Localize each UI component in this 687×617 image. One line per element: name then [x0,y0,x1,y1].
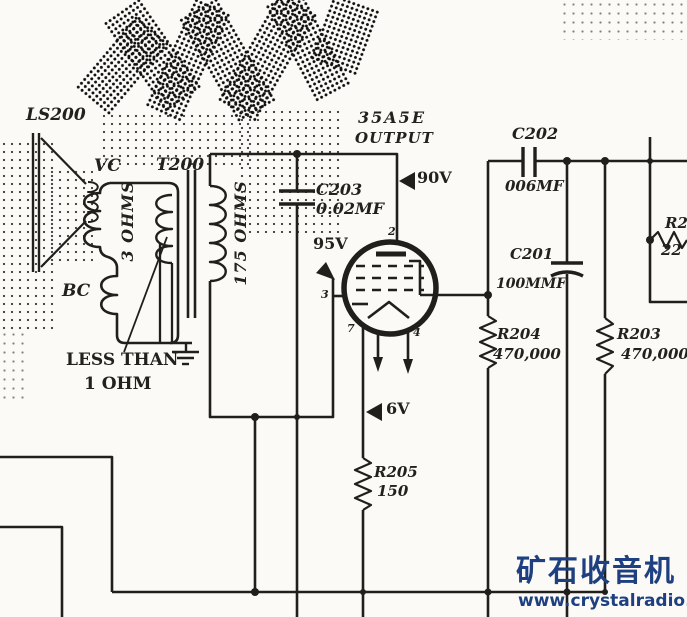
capacitor-c202-symbol [523,147,535,177]
voice-coil-label: VC [94,158,121,175]
note-one-ohm-label: 1 OHM [84,376,151,393]
c202-ref-label: C202 [512,126,558,142]
voltage-arrow-90v [399,172,415,190]
tube-pin3-label: 3 [321,289,329,300]
site-watermark-name: 矿石收音机 [516,555,676,588]
voltage-arrow-95v [316,262,335,280]
voice-coil-loop [84,183,192,352]
r205-value-label: 150 [377,484,408,499]
heater-pin-arrow [403,359,413,374]
r204-value-label: 470,000 [493,347,561,362]
r203-ref-label: R203 [617,327,661,342]
speaker-symbol [33,133,98,272]
bucking-coil-label: BC [62,283,90,300]
edge-resistor-value-label: 22 [661,243,682,258]
tube-cathode [368,302,409,318]
c203-ref-label: C203 [316,182,362,198]
tube-pin4-label: 4 [413,327,421,338]
tube-pin7-label: 7 [347,323,355,334]
transformer-left-winding [156,195,172,263]
voltage-95v-label: 95V [313,236,348,252]
note-less-than-label: LESS THAN [66,352,178,369]
r205-ref-label: R205 [374,465,418,480]
c201-value-label: 100MMF [496,277,566,291]
heater-pin-arrow [373,357,383,372]
c202-value-label: 006MF [505,179,564,194]
vc-impedance-label: 3 OHMS [120,180,136,261]
r204-ref-label: R204 [497,327,541,342]
tube-function-label: OUTPUT [355,131,434,146]
tube-symbol [344,242,436,334]
resistor-r205-symbol [355,458,371,510]
voltage-6v-label: 6V [386,401,410,417]
voltage-90v-label: 90V [417,170,452,186]
junction-dots [251,150,654,596]
transformer-ref-label: T200 [156,157,204,174]
transformer-right-winding [210,186,226,281]
winding-impedance-label: 175 OHMS [233,180,249,285]
tube-pin2-label: 2 [388,226,396,237]
c201-ref-label: C201 [510,247,553,262]
r203-value-label: 470,000 [621,347,687,362]
edge-resistor-ref-label: R2 [665,216,687,231]
schematic-canvas [0,0,687,617]
site-watermark-url: www.crystalradio.cn [518,592,687,611]
tube-type-label: 35A5E [358,110,426,126]
capacitor-c203-symbol [279,191,315,204]
transformer-symbol [156,170,226,318]
resistor-r203-symbol [597,318,613,374]
speaker-ref-label: LS200 [26,107,86,124]
c203-value-label: 0.02MF [316,201,384,217]
voltage-arrow-6v [366,403,382,421]
schematic-scan: LS200 VC T200 3 OHMS 175 OHMS BC LESS TH… [0,0,687,617]
